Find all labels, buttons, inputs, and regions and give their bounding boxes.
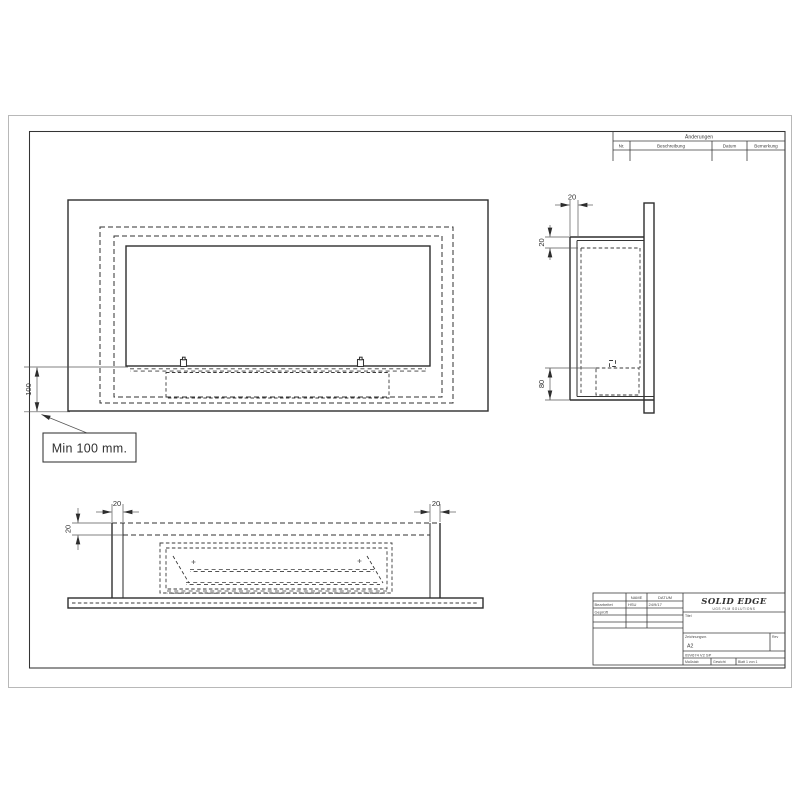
side-dim-80-label: 80 [537, 380, 546, 388]
bottom-dim-topright-20-label: 20 [432, 499, 440, 508]
revision-col-nr: Nr. [619, 144, 625, 149]
tb-row2-label: Geprüft [595, 609, 609, 614]
tb-name-header: NAME [631, 595, 643, 600]
tb-rev-label: Rev [772, 635, 778, 639]
tb-title-label: Titel [685, 614, 692, 618]
solid-edge-logo-subtitle: UGS PLM SOLUTIONS [712, 607, 755, 611]
tb-drawing-no-label: Zeichnungsnr. [685, 635, 707, 639]
revision-table-title: Änderungen [685, 134, 713, 141]
min-clearance-note: Min 100 mm. [52, 442, 128, 456]
tb-sheet-format: A2 [687, 644, 693, 650]
tb-row1-label: Bearbeitet [595, 602, 614, 607]
revision-col-beschreibung: Beschreibung [657, 144, 686, 149]
side-dim-top-20-label: 20 [568, 193, 576, 202]
side-wall-plate [644, 203, 654, 413]
revision-col-bemerkung: Bemerkung [754, 144, 778, 149]
tb-weight-label: Gewicht [713, 660, 726, 664]
tb-file-text: 09V674 V2 SP [685, 652, 712, 657]
tb-date-header: DATUM [658, 595, 672, 600]
revision-col-datum: Datum [723, 144, 737, 149]
front-dim-100-label: 100 [24, 383, 33, 396]
tb-sheet-label: Blatt 1 von 1 [738, 660, 758, 664]
scanned-drawing-page: Änderungen Nr. Beschreibung Datum Bemerk… [0, 0, 800, 800]
side-dim-left-20-label: 20 [537, 238, 546, 246]
solid-edge-logo: SOLID EDGE [701, 597, 767, 607]
tb-row1-date: 24/9/17 [649, 602, 663, 607]
bottom-dim-left-20-label: 20 [64, 525, 73, 533]
tb-scale-label: Maßstab [685, 660, 699, 664]
tb-row1-name: HSU [628, 602, 637, 607]
bottom-dim-topleft-20-label: 20 [113, 499, 121, 508]
drawing-sheet: Änderungen Nr. Beschreibung Datum Bemerk… [0, 0, 800, 800]
